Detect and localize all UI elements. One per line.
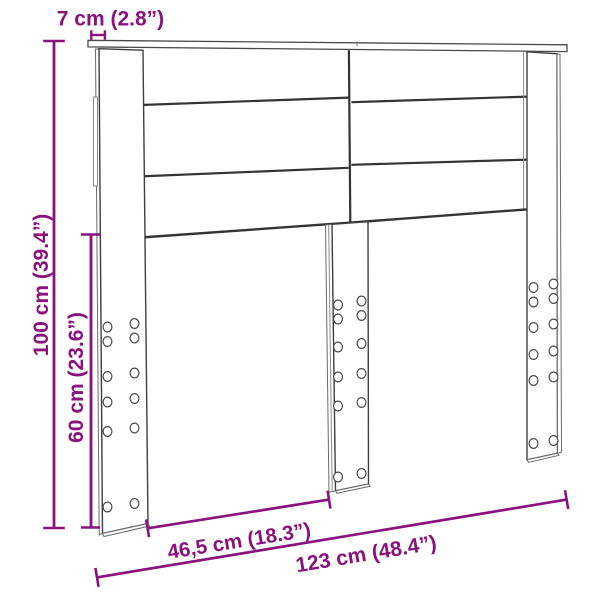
total-width-dimension-label: 123 cm (48.4”) bbox=[294, 531, 438, 577]
left-leg-front-face bbox=[99, 49, 148, 534]
dimension-diagram: 7 cm (2.8”) 100 cm (39.4”) 60 cm (23.6”)… bbox=[0, 0, 600, 600]
headboard-panel-grid bbox=[141, 50, 528, 237]
panel-line-right-2 bbox=[351, 160, 528, 165]
right-leg bbox=[527, 52, 562, 463]
left-leg bbox=[94, 49, 150, 537]
middle-leg bbox=[326, 222, 371, 494]
leg-height-dimension-label: 60 cm (23.6”) bbox=[65, 312, 88, 443]
middle-leg-front-face bbox=[332, 222, 369, 491]
dimension-total-width: 123 cm (48.4”) bbox=[95, 490, 568, 587]
headboard-top-board bbox=[88, 40, 567, 51]
panel-line-right-1 bbox=[351, 97, 528, 103]
total-height-dimension-label: 100 cm (39.4”) bbox=[30, 214, 53, 356]
dimension-leg-height: 60 cm (23.6”) bbox=[65, 235, 100, 528]
inner-width-dimension-label: 46,5 cm (18.3”) bbox=[166, 518, 313, 564]
panel-line-left-1 bbox=[141, 98, 349, 105]
right-leg-front-face bbox=[527, 52, 558, 460]
dimension-depth: 7 cm (2.8”) bbox=[57, 8, 164, 40]
depth-dimension-label: 7 cm (2.8”) bbox=[57, 8, 164, 31]
panel-line-left-2 bbox=[141, 168, 349, 177]
panel-center-stile bbox=[349, 50, 350, 222]
dimension-total-height: 100 cm (39.4”) bbox=[30, 41, 65, 528]
left-post-side-detail bbox=[94, 97, 98, 186]
headboard-drawing: 7 cm (2.8”) 100 cm (39.4”) 60 cm (23.6”)… bbox=[0, 0, 600, 600]
right-leg-side-face bbox=[557, 54, 562, 454]
